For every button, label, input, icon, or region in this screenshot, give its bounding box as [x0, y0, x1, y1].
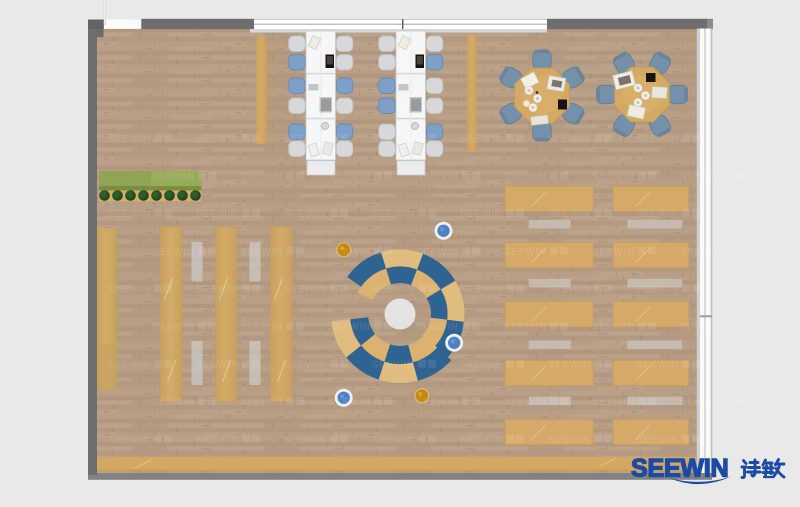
svg-text:SEEWIN: SEEWIN — [504, 172, 546, 183]
svg-text:SEEWIN: SEEWIN — [372, 435, 414, 446]
svg-text:SEEWIN: SEEWIN — [328, 172, 370, 183]
svg-text:SEEWIN: SEEWIN — [636, 284, 678, 295]
svg-text:SEEWIN: SEEWIN — [548, 134, 590, 145]
svg-text:SEEWIN: SEEWIN — [548, 209, 590, 220]
svg-text:SEEWIN: SEEWIN — [460, 134, 502, 145]
svg-text:SEEWIN: SEEWIN — [240, 397, 282, 408]
svg-text:SEEWIN: SEEWIN — [416, 172, 458, 183]
svg-text:SEEWIN: SEEWIN — [548, 435, 590, 446]
svg-text:SEEWIN: SEEWIN — [416, 247, 458, 258]
svg-text:SEEWIN: SEEWIN — [680, 322, 722, 333]
svg-text:SEEWIN: SEEWIN — [240, 322, 282, 333]
svg-text:SEEWIN: SEEWIN — [636, 435, 678, 446]
svg-text:SEEWIN: SEEWIN — [372, 284, 414, 295]
svg-text:SEEWIN: SEEWIN — [460, 435, 502, 446]
svg-text:SEEWIN: SEEWIN — [592, 247, 634, 258]
svg-text:SEEWIN: SEEWIN — [108, 284, 150, 295]
svg-text:SEEWIN: SEEWIN — [504, 247, 546, 258]
svg-text:SEEWIN: SEEWIN — [152, 247, 194, 258]
svg-text:SEEWIN: SEEWIN — [240, 247, 282, 258]
svg-text:SEEWIN: SEEWIN — [636, 134, 678, 145]
svg-text:SEEWIN: SEEWIN — [240, 172, 282, 183]
svg-text:SEEWIN: SEEWIN — [504, 397, 546, 408]
svg-text:SEEWIN: SEEWIN — [636, 209, 678, 220]
svg-text:SEEWIN: SEEWIN — [680, 247, 722, 258]
svg-text:SEEWIN: SEEWIN — [592, 172, 634, 183]
svg-text:SEEWIN: SEEWIN — [460, 209, 502, 220]
svg-text:SEEWIN: SEEWIN — [284, 435, 326, 446]
svg-text:SEEWIN: SEEWIN — [372, 134, 414, 145]
svg-text:SEEWIN: SEEWIN — [196, 360, 238, 371]
svg-text:SEEWIN: SEEWIN — [416, 397, 458, 408]
svg-text:SEEWIN: SEEWIN — [636, 360, 678, 371]
svg-text:SEEWIN: SEEWIN — [372, 209, 414, 220]
svg-text:SEEWIN: SEEWIN — [680, 397, 722, 408]
svg-text:SEEWIN: SEEWIN — [108, 134, 150, 145]
svg-text:SEEWIN: SEEWIN — [108, 209, 150, 220]
svg-text:SEEWIN: SEEWIN — [284, 284, 326, 295]
svg-text:SEEWIN: SEEWIN — [592, 397, 634, 408]
svg-text:SEEWIN: SEEWIN — [196, 284, 238, 295]
svg-text:SEEWIN: SEEWIN — [152, 172, 194, 183]
svg-text:SEEWIN: SEEWIN — [631, 455, 728, 483]
svg-text:SEEWIN: SEEWIN — [284, 209, 326, 220]
svg-text:SEEWIN: SEEWIN — [328, 322, 370, 333]
svg-text:SEEWIN: SEEWIN — [152, 397, 194, 408]
svg-text:SEEWIN: SEEWIN — [592, 322, 634, 333]
svg-text:SEEWIN: SEEWIN — [108, 360, 150, 371]
svg-text:SEEWIN: SEEWIN — [196, 209, 238, 220]
svg-text:SEEWIN: SEEWIN — [328, 247, 370, 258]
svg-text:SEEWIN: SEEWIN — [284, 134, 326, 145]
svg-text:SEEWIN: SEEWIN — [460, 360, 502, 371]
svg-text:SEEWIN: SEEWIN — [108, 435, 150, 446]
svg-text:SEEWIN: SEEWIN — [372, 360, 414, 371]
svg-text:SEEWIN: SEEWIN — [680, 172, 722, 183]
svg-text:SEEWIN: SEEWIN — [284, 360, 326, 371]
svg-text:SEEWIN: SEEWIN — [548, 284, 590, 295]
svg-text:SEEWIN: SEEWIN — [196, 134, 238, 145]
svg-text:SEEWIN: SEEWIN — [328, 397, 370, 408]
svg-text:SEEWIN: SEEWIN — [416, 322, 458, 333]
svg-text:SEEWIN: SEEWIN — [152, 322, 194, 333]
svg-text:SEEWIN: SEEWIN — [460, 284, 502, 295]
svg-text:SEEWIN: SEEWIN — [196, 435, 238, 446]
svg-text:SEEWIN: SEEWIN — [504, 322, 546, 333]
svg-text:SEEWIN: SEEWIN — [548, 360, 590, 371]
